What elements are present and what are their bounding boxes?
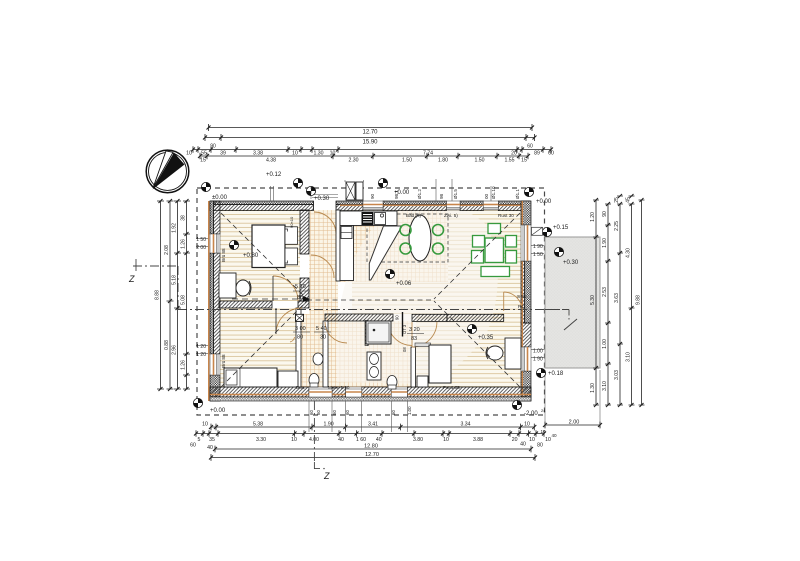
svg-text:1 20: 1 20 <box>196 344 206 350</box>
svg-text:Dus.: Dus. <box>296 385 305 390</box>
svg-text:80: 80 <box>297 295 303 301</box>
svg-text:Brü 88: Brü 88 <box>221 354 226 368</box>
svg-text:Rust 30: Rust 30 <box>498 213 514 218</box>
svg-text:10: 10 <box>291 437 297 443</box>
svg-text:5.18: 5.18 <box>172 275 178 285</box>
svg-text:80: 80 <box>297 335 303 341</box>
svg-text:3.10: 3.10 <box>602 381 608 391</box>
svg-text:20: 20 <box>511 150 517 156</box>
svg-text:1.55: 1.55 <box>504 157 514 163</box>
svg-text:4.30: 4.30 <box>626 248 632 258</box>
svg-text:+0.15: +0.15 <box>553 225 569 231</box>
svg-text:Zwi. 5): Zwi. 5) <box>444 213 458 218</box>
svg-text:89: 89 <box>534 150 540 156</box>
svg-text:Ø1.2: Ø1.2 <box>417 189 422 199</box>
svg-text:2.30: 2.30 <box>348 157 358 163</box>
svg-text:10: 10 <box>186 150 192 156</box>
svg-text:10: 10 <box>540 429 546 434</box>
svg-text:35: 35 <box>209 437 215 443</box>
svg-text:3.38: 3.38 <box>253 150 263 156</box>
svg-text:Ø1.5: Ø1.5 <box>453 189 458 199</box>
svg-text:39: 39 <box>220 150 226 156</box>
svg-text:90×10: 90×10 <box>289 216 294 228</box>
svg-text:25: 25 <box>614 197 620 203</box>
svg-text:+0.30: +0.30 <box>314 196 330 202</box>
svg-text:40: 40 <box>207 445 213 451</box>
svg-text:1.50: 1.50 <box>402 157 412 163</box>
svg-text:1.26: 1.26 <box>181 360 187 370</box>
svg-text:+0.12: +0.12 <box>266 172 282 178</box>
svg-text:5.08: 5.08 <box>181 295 187 305</box>
svg-text:10: 10 <box>292 150 298 156</box>
svg-text:40: 40 <box>338 437 344 443</box>
svg-text:3 20: 3 20 <box>409 327 420 333</box>
svg-text:+0.06: +0.06 <box>396 281 412 287</box>
svg-text:40: 40 <box>551 433 557 438</box>
svg-text:Ø1.10: Ø1.10 <box>491 186 496 199</box>
svg-text:1.26: 1.26 <box>181 239 187 249</box>
svg-text:2.25: 2.25 <box>614 221 620 231</box>
svg-text:10: 10 <box>545 437 551 443</box>
svg-text:1 50: 1 50 <box>533 252 543 258</box>
svg-text:5 10: 5 10 <box>295 284 306 290</box>
svg-text:55: 55 <box>201 150 207 156</box>
svg-text:3 00: 3 00 <box>295 326 306 332</box>
svg-text:10: 10 <box>202 421 208 427</box>
svg-text:60: 60 <box>316 410 321 415</box>
svg-text:3.34: 3.34 <box>460 421 470 427</box>
svg-text:20: 20 <box>512 437 518 443</box>
svg-text:90: 90 <box>602 211 608 217</box>
svg-text:24: 24 <box>541 408 546 413</box>
svg-text:+0.00: +0.00 <box>210 408 226 414</box>
svg-text:3.30: 3.30 <box>256 437 266 443</box>
svg-text:+0.35: +0.35 <box>478 335 494 341</box>
svg-text:40: 40 <box>376 437 382 443</box>
svg-text:10: 10 <box>524 421 530 427</box>
svg-text:30: 30 <box>320 335 326 341</box>
svg-text:60: 60 <box>332 410 337 415</box>
svg-text:3.10: 3.10 <box>626 352 632 362</box>
svg-text:0.88: 0.88 <box>164 340 170 350</box>
svg-text:1 20: 1 20 <box>196 352 206 358</box>
svg-text:9.88: 9.88 <box>636 295 642 305</box>
svg-text:2.53: 2.53 <box>602 287 608 297</box>
svg-text:80: 80 <box>537 443 543 449</box>
svg-text:10: 10 <box>443 437 449 443</box>
svg-text:OT 3: OT 3 <box>402 324 407 334</box>
svg-text:1.50: 1.50 <box>474 157 484 163</box>
svg-text:60: 60 <box>548 150 554 156</box>
svg-text:2.96: 2.96 <box>172 345 178 355</box>
svg-text:Pst 1.05: Pst 1.05 <box>443 385 460 390</box>
svg-text:1 90: 1 90 <box>533 244 543 250</box>
svg-text:10: 10 <box>529 437 535 443</box>
svg-text:8.88: 8.88 <box>155 290 161 300</box>
svg-text:3.41: 3.41 <box>368 421 378 427</box>
svg-text:1.30: 1.30 <box>590 383 596 393</box>
svg-text:5.38: 5.38 <box>253 421 263 427</box>
svg-text:60: 60 <box>527 144 533 150</box>
svg-text:15: 15 <box>521 157 527 163</box>
svg-text:2.00: 2.00 <box>569 419 580 425</box>
svg-text:98.1: 98.1 <box>394 190 399 199</box>
svg-text:+0.30: +0.30 <box>563 260 579 266</box>
svg-text:1.00: 1.00 <box>407 406 412 415</box>
svg-text:2 00: 2 00 <box>196 245 206 251</box>
svg-text:Bad (8): Bad (8) <box>406 213 422 218</box>
svg-text:5: 5 <box>198 437 201 443</box>
svg-text:08: 08 <box>402 347 407 352</box>
svg-text:1 60: 1 60 <box>356 437 366 443</box>
svg-text:90: 90 <box>395 315 400 320</box>
svg-text:90: 90 <box>370 193 375 199</box>
svg-text:+0.80: +0.80 <box>243 253 259 259</box>
svg-text:60: 60 <box>391 410 396 415</box>
svg-text:Mats. 1.90: Mats. 1.90 <box>328 385 350 390</box>
svg-text:1.80: 1.80 <box>438 157 448 163</box>
svg-text:+0.00: +0.00 <box>536 199 552 205</box>
svg-text:1.90: 1.90 <box>602 238 608 248</box>
svg-text:38: 38 <box>181 215 187 221</box>
svg-text:15.90: 15.90 <box>362 140 378 146</box>
svg-text:1.00: 1.00 <box>602 339 608 349</box>
svg-text:Brü 88: Brü 88 <box>221 248 226 262</box>
svg-text:Ø1.1: Ø1.1 <box>515 189 520 199</box>
svg-text:12.80: 12.80 <box>364 443 378 449</box>
svg-text:40: 40 <box>520 442 526 448</box>
svg-text:±0.00: ±0.00 <box>212 195 228 201</box>
svg-text:10: 10 <box>330 150 336 156</box>
svg-text:3.03: 3.03 <box>614 370 620 380</box>
svg-text:45: 45 <box>626 197 632 203</box>
svg-text:Z: Z <box>128 274 135 284</box>
svg-text:60: 60 <box>345 410 350 415</box>
svg-text:RC: RC <box>518 304 525 309</box>
svg-text:3.88: 3.88 <box>473 437 483 443</box>
svg-text:12.70: 12.70 <box>365 452 379 458</box>
svg-text:1.20: 1.20 <box>590 212 596 222</box>
svg-text:00: 00 <box>484 193 489 199</box>
svg-text:-2.00: -2.00 <box>524 411 538 417</box>
svg-text:15: 15 <box>200 157 206 163</box>
svg-text:60: 60 <box>190 443 196 449</box>
svg-text:3.80: 3.80 <box>413 437 423 443</box>
svg-text:83: 83 <box>411 336 417 342</box>
svg-text:1.30: 1.30 <box>313 150 323 156</box>
svg-text:12.70: 12.70 <box>362 130 378 136</box>
svg-text:4.38: 4.38 <box>266 157 276 163</box>
svg-text:98: 98 <box>439 193 444 199</box>
svg-text:3.63: 3.63 <box>614 293 620 303</box>
svg-text:S 80: S 80 <box>517 294 527 299</box>
svg-text:Z: Z <box>323 471 330 481</box>
svg-text:5.30: 5.30 <box>590 295 596 305</box>
svg-text:2.08: 2.08 <box>164 245 170 255</box>
svg-text:+0.18: +0.18 <box>548 371 564 377</box>
svg-text:1 50: 1 50 <box>196 237 206 243</box>
svg-text:60: 60 <box>309 410 314 415</box>
svg-text:5 40: 5 40 <box>316 326 327 332</box>
svg-text:1.92: 1.92 <box>172 223 178 233</box>
